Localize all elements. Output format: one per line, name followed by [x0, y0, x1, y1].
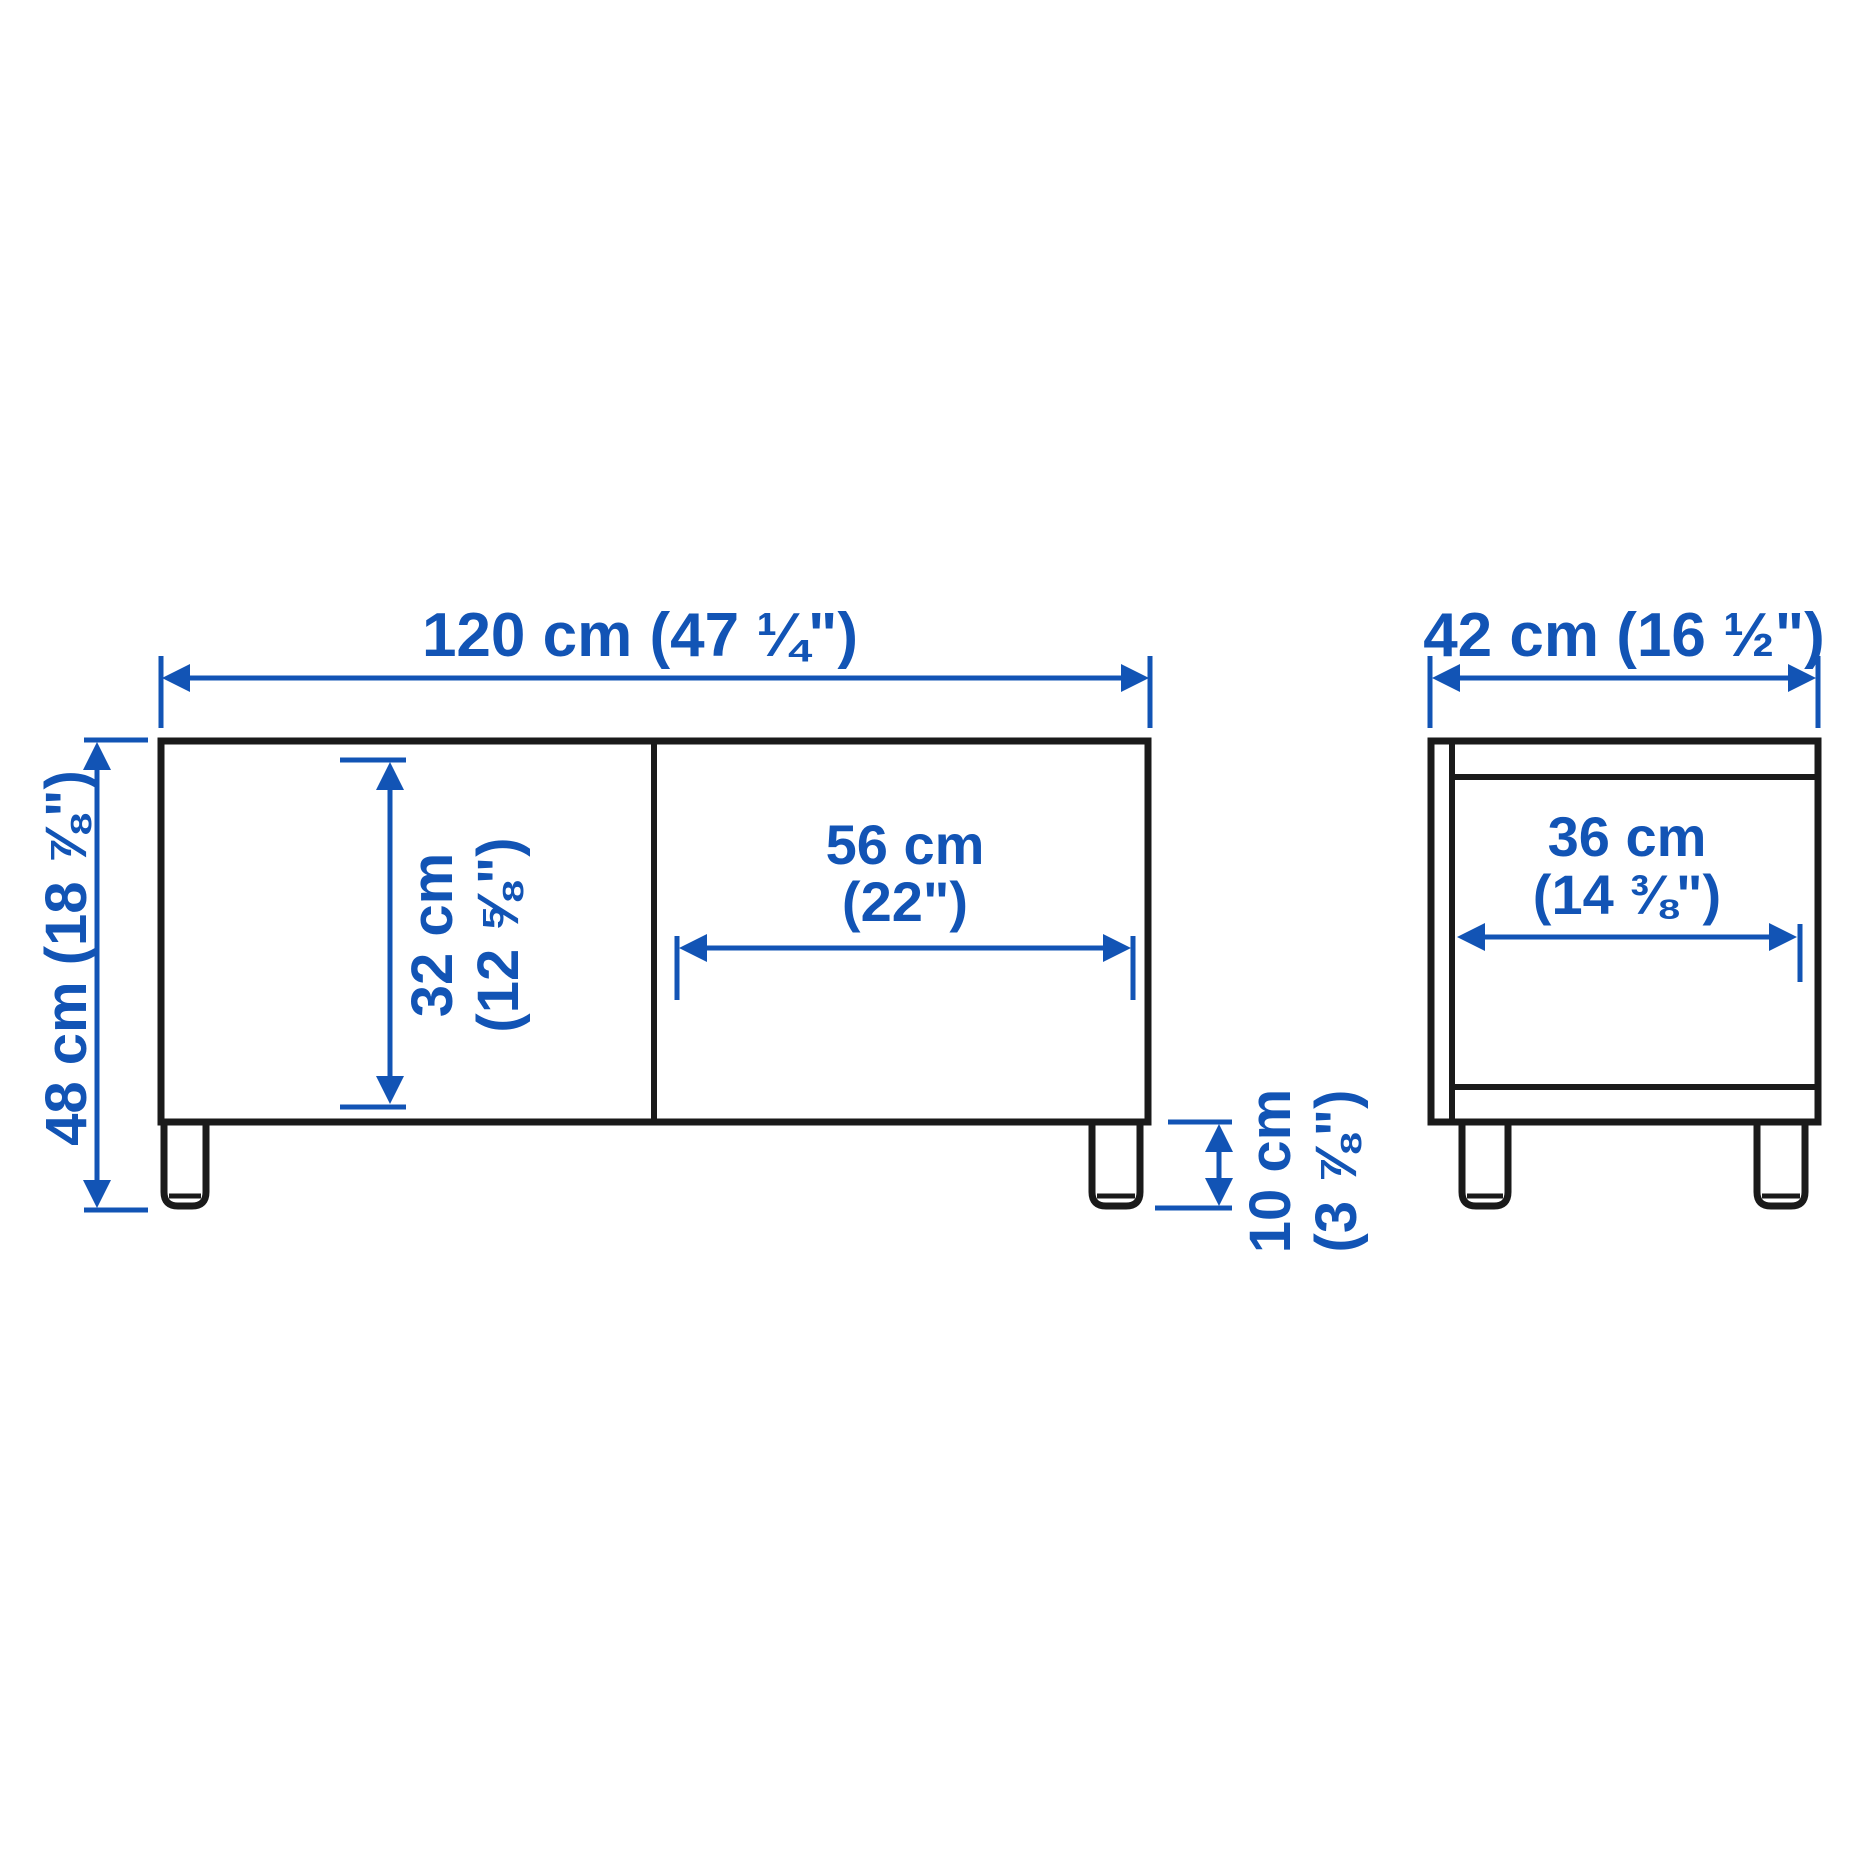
arrowhead-left-icon [679, 934, 707, 962]
inner-width-label-line2: (14 ⅜") [1533, 863, 1721, 926]
leg-height-label-line1: 10 cm [1238, 1089, 1303, 1253]
side-left-leg [1462, 1122, 1508, 1206]
arrowhead-up-icon [376, 762, 404, 790]
furniture-dimension-diagram: 120 cm (47 ¼") 48 cm (18 ⅞") 32 cm (12 ⅝… [0, 0, 1860, 1860]
arrowhead-left-icon [162, 664, 190, 692]
side-right-leg [1757, 1122, 1805, 1206]
arrowhead-right-icon [1103, 934, 1131, 962]
front-left-leg [164, 1122, 206, 1206]
dimension-overall-height: 48 cm (18 ⅞") [34, 740, 148, 1210]
overall-height-label: 48 cm (18 ⅞") [34, 770, 99, 1146]
leg-height-label-line2: (3 ⅞") [1304, 1090, 1369, 1253]
arrowhead-right-icon [1121, 664, 1149, 692]
dimension-inner-width: 36 cm (14 ⅜") [1457, 805, 1800, 982]
front-right-leg [1092, 1122, 1140, 1206]
side-cabinet-body [1431, 741, 1818, 1122]
dimension-overall-width: 120 cm (47 ¼") [161, 601, 1150, 728]
door-height-label-line2: (12 ⅝") [466, 837, 531, 1032]
arrowhead-up-icon [83, 742, 111, 770]
drawer-width-label-line1: 56 cm [826, 813, 985, 876]
front-view: 120 cm (47 ¼") 48 cm (18 ⅞") 32 cm (12 ⅝… [34, 601, 1369, 1253]
dimension-drawer-width: 56 cm (22") [677, 813, 1133, 1000]
arrowhead-up-icon [1205, 1124, 1233, 1152]
arrowhead-down-icon [376, 1076, 404, 1104]
arrowhead-down-icon [1205, 1178, 1233, 1206]
dimension-door-height: 32 cm (12 ⅝") [340, 760, 531, 1107]
side-view: 42 cm (16 ½") 36 cm (14 ⅜") [1423, 601, 1825, 1206]
depth-label: 42 cm (16 ½") [1423, 601, 1825, 670]
arrowhead-left-icon [1457, 923, 1485, 951]
dimension-diagram-page: 120 cm (47 ¼") 48 cm (18 ⅞") 32 cm (12 ⅝… [0, 0, 1860, 1860]
arrowhead-down-icon [83, 1180, 111, 1208]
drawer-width-label-line2: (22") [842, 870, 968, 933]
arrowhead-right-icon [1769, 923, 1797, 951]
dimension-depth: 42 cm (16 ½") [1423, 601, 1825, 728]
dimension-leg-height: 10 cm (3 ⅞") [1155, 1089, 1369, 1253]
door-height-label-line1: 32 cm [400, 853, 465, 1017]
overall-width-label: 120 cm (47 ¼") [422, 601, 858, 670]
inner-width-label-line1: 36 cm [1548, 805, 1707, 868]
